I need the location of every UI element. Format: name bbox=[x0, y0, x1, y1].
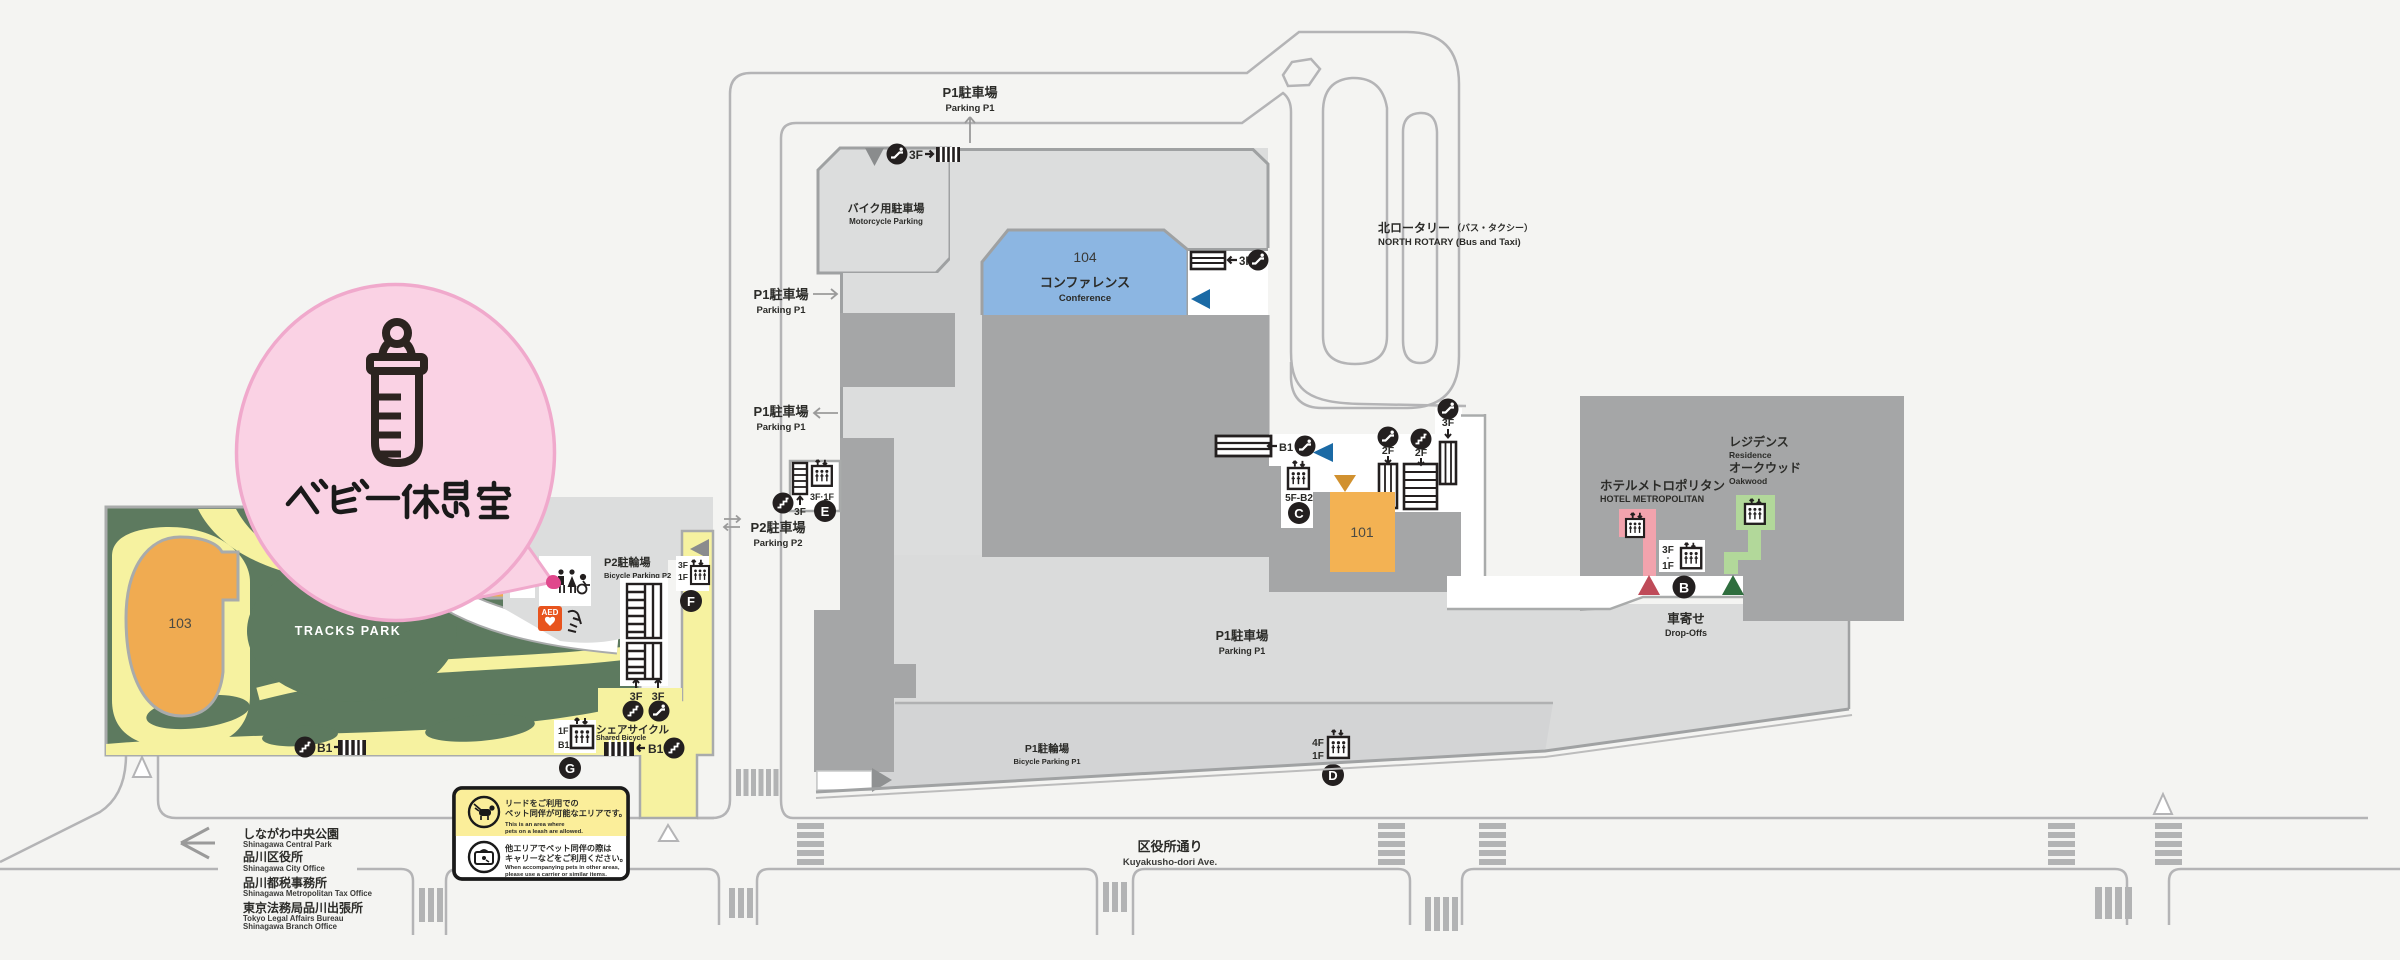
svg-text:P1駐車場: P1駐車場 bbox=[1216, 628, 1269, 643]
svg-text:D: D bbox=[1328, 768, 1337, 783]
svg-text:G: G bbox=[565, 761, 575, 776]
svg-text:B1: B1 bbox=[317, 741, 333, 755]
svg-text:Shinagawa Central Park: Shinagawa Central Park bbox=[243, 840, 332, 849]
svg-text:Drop-Offs: Drop-Offs bbox=[1665, 628, 1707, 638]
svg-text:品川区役所: 品川区役所 bbox=[243, 849, 303, 864]
svg-text:リードをご利用での: リードをご利用での bbox=[505, 798, 579, 808]
svg-text:B1: B1 bbox=[1279, 442, 1293, 454]
svg-text:バイク用駐車場: バイク用駐車場 bbox=[848, 201, 925, 215]
svg-text:104: 104 bbox=[1073, 249, 1097, 265]
svg-text:（バス・タクシー）: （バス・タクシー） bbox=[1452, 222, 1533, 233]
svg-text:ホテルメトロポリタン: ホテルメトロポリタン bbox=[1600, 478, 1725, 493]
svg-text:レジデンス: レジデンス bbox=[1729, 434, 1789, 449]
svg-text:This is an area where: This is an area where bbox=[505, 822, 565, 828]
svg-text:東京法務局品川出張所: 東京法務局品川出張所 bbox=[243, 900, 363, 915]
svg-text:3F: 3F bbox=[794, 507, 806, 518]
svg-text:1F: 1F bbox=[1312, 751, 1324, 762]
svg-text:B: B bbox=[1679, 580, 1689, 596]
svg-text:区役所通り: 区役所通り bbox=[1137, 839, 1202, 854]
svg-text:車寄せ: 車寄せ bbox=[1667, 611, 1705, 626]
svg-text:Bicycle Parking P1: Bicycle Parking P1 bbox=[1013, 757, 1080, 766]
svg-text:101: 101 bbox=[1350, 524, 1374, 540]
svg-text:Shinagawa Metropolitan Tax Off: Shinagawa Metropolitan Tax Office bbox=[243, 889, 373, 898]
svg-text:P1駐車場: P1駐車場 bbox=[754, 404, 809, 419]
svg-text:Parking P2: Parking P2 bbox=[753, 538, 802, 549]
svg-text:P1駐輪場: P1駐輪場 bbox=[1025, 742, 1070, 755]
svg-text:Conference: Conference bbox=[1059, 293, 1111, 304]
svg-text:他エリアでペット同伴の際は: 他エリアでペット同伴の際は bbox=[504, 843, 611, 853]
svg-text:3F: 3F bbox=[678, 560, 688, 570]
svg-text:P1駐車場: P1駐車場 bbox=[943, 85, 998, 100]
svg-text:2F: 2F bbox=[1415, 447, 1428, 459]
svg-text:Parking P1: Parking P1 bbox=[945, 103, 995, 114]
svg-text:キャリーなどをご利用ください。: キャリーなどをご利用ください。 bbox=[505, 853, 628, 863]
svg-text:3F: 3F bbox=[1442, 417, 1455, 429]
svg-text:F: F bbox=[687, 594, 695, 609]
svg-text:しながわ中央公園: しながわ中央公園 bbox=[243, 826, 339, 841]
svg-text:4F: 4F bbox=[1312, 738, 1324, 749]
svg-text:TRACKS PARK: TRACKS PARK bbox=[295, 624, 402, 638]
svg-text:pets on a leash are allowed.: pets on a leash are allowed. bbox=[505, 829, 583, 835]
svg-text:E: E bbox=[821, 504, 830, 519]
svg-text:B1: B1 bbox=[558, 740, 570, 750]
svg-text:Parking P1: Parking P1 bbox=[756, 422, 806, 433]
svg-text:品川都税事務所: 品川都税事務所 bbox=[243, 875, 327, 890]
svg-text:オークウッド: オークウッド bbox=[1729, 461, 1801, 475]
svg-text:C: C bbox=[1294, 506, 1304, 521]
svg-text:When accompanying pets in othe: When accompanying pets in other areas, bbox=[505, 865, 620, 871]
svg-text:Shinagawa City Office: Shinagawa City Office bbox=[243, 864, 326, 873]
svg-text:NORTH ROTARY (Bus and Taxi): NORTH ROTARY (Bus and Taxi) bbox=[1378, 237, 1521, 248]
svg-text:Kuyakusho-dori Ave.: Kuyakusho-dori Ave. bbox=[1123, 857, 1217, 868]
svg-text:Residence: Residence bbox=[1729, 450, 1772, 460]
svg-text:P2駐輪場: P2駐輪場 bbox=[604, 555, 650, 569]
svg-text:3F: 3F bbox=[909, 148, 923, 162]
svg-text:Oakwood: Oakwood bbox=[1729, 476, 1767, 486]
svg-text:AED: AED bbox=[542, 608, 559, 617]
svg-text:P2駐車場: P2駐車場 bbox=[751, 520, 806, 535]
svg-text:103: 103 bbox=[168, 615, 192, 631]
svg-text:Parking P1: Parking P1 bbox=[1219, 646, 1266, 656]
svg-text:2F: 2F bbox=[1382, 445, 1395, 457]
svg-text:北ロータリー: 北ロータリー bbox=[1378, 220, 1450, 235]
svg-text:HOTEL METROPOLITAN: HOTEL METROPOLITAN bbox=[1600, 494, 1704, 504]
svg-text:Shinagawa Branch Office: Shinagawa Branch Office bbox=[243, 922, 338, 931]
svg-text:Motorcycle Parking: Motorcycle Parking bbox=[849, 217, 923, 226]
svg-text:B1: B1 bbox=[648, 742, 664, 756]
svg-text:please use a carrier or simila: please use a carrier or similar items. bbox=[505, 872, 607, 878]
svg-text:コンファレンス: コンファレンス bbox=[1040, 275, 1130, 290]
svg-text:1F: 1F bbox=[558, 726, 569, 736]
svg-text:1F: 1F bbox=[1662, 561, 1674, 572]
svg-text:ペット同伴が可能なエリアです。: ペット同伴が可能なエリアです。 bbox=[505, 808, 627, 818]
svg-text:1F: 1F bbox=[678, 572, 688, 582]
svg-text:P1駐車場: P1駐車場 bbox=[754, 287, 809, 302]
svg-text:Parking P1: Parking P1 bbox=[756, 305, 806, 316]
